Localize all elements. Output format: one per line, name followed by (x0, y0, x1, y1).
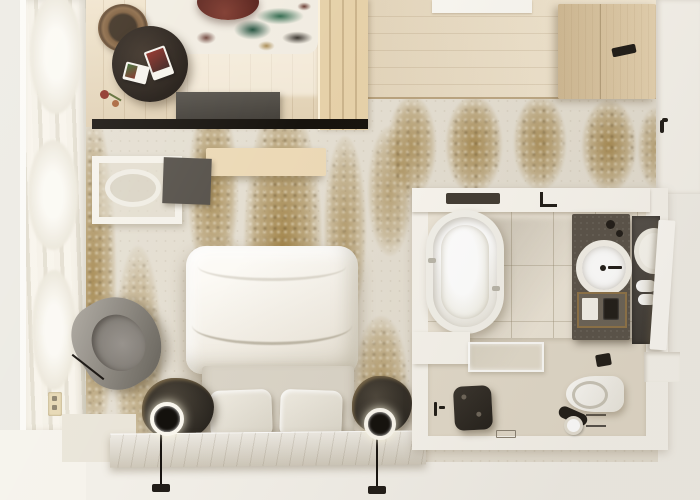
curtain-fold (30, 0, 82, 114)
wardrobe-handle (611, 44, 636, 58)
carpet-gold-streak (388, 96, 436, 196)
soap-bottle (616, 230, 623, 237)
toilet (566, 376, 624, 412)
bathtub (426, 210, 504, 334)
bathtub-basin (441, 225, 489, 319)
counter-niche (446, 193, 500, 204)
stool-item (476, 412, 481, 417)
tv-wall-panel (92, 119, 368, 129)
amenity-tray (577, 292, 627, 328)
shower-control (434, 402, 437, 416)
toilet-paper-roll (564, 416, 583, 435)
desk-chair-oval (105, 169, 161, 207)
duvet-fold (192, 306, 352, 345)
wood-partition (318, 0, 368, 130)
tub-handle (428, 258, 436, 263)
window-curtains (26, 0, 86, 432)
door-handle-knob (662, 118, 668, 122)
flush-plate (595, 353, 612, 367)
stool-item (461, 394, 466, 399)
flower-bloom (100, 90, 109, 99)
shower-stool (453, 385, 493, 431)
magazine-cover (125, 64, 138, 79)
curtain-fold (28, 140, 78, 250)
floating-shelf (206, 148, 326, 176)
bathroom (412, 188, 668, 450)
lamp-base-left (152, 484, 170, 492)
room-render: Top-down 3D render of a hotel guest room… (0, 0, 700, 500)
wall-outlet (48, 392, 62, 416)
entry-right-wall (656, 0, 700, 194)
entry-mat (432, 0, 532, 13)
sink-drain (600, 265, 606, 271)
amenity-card (582, 298, 598, 320)
curtain-fold (32, 270, 76, 390)
wardrobe-door-seam (600, 4, 601, 99)
wall-notch (644, 352, 680, 382)
magazine (122, 61, 150, 84)
shower-control (439, 406, 445, 409)
magazine-cover (146, 48, 170, 73)
floor-tray (496, 430, 516, 438)
carpet-gold-streak (582, 100, 636, 192)
flower-posy (98, 88, 124, 112)
carpet-gold-streak (446, 96, 502, 194)
carpet-gold-streak (638, 108, 658, 188)
bed-duvet (186, 246, 358, 374)
wardrobe-cabinet (558, 4, 656, 99)
ring-lamp-left (150, 402, 184, 436)
tub-handle (492, 286, 500, 291)
flower-bloom (112, 100, 119, 107)
lamp-base-right (368, 486, 386, 494)
outlet-socket (52, 396, 57, 401)
duvet-fold (198, 252, 346, 281)
lamp-stem-left (160, 430, 162, 486)
lamp-stem-right (376, 434, 378, 488)
soap-bottle (606, 220, 615, 229)
outlet-socket (52, 405, 57, 410)
ring-lamp-right (364, 408, 396, 440)
amenity-kit (603, 298, 619, 320)
sink-faucet (608, 266, 622, 269)
carpet-gold-streak (514, 96, 566, 190)
magazine (144, 45, 175, 81)
media-bench (176, 92, 280, 122)
desk-mat (162, 157, 212, 205)
tub-filler-faucet (540, 192, 557, 207)
vanity-sink (576, 240, 632, 296)
floor-drain (586, 414, 606, 427)
vanity-counter (572, 214, 630, 340)
wall-ledge (412, 332, 470, 364)
carpet-gold-streak (368, 126, 412, 256)
shower-bench (468, 342, 544, 372)
toilet-seat (572, 381, 608, 409)
